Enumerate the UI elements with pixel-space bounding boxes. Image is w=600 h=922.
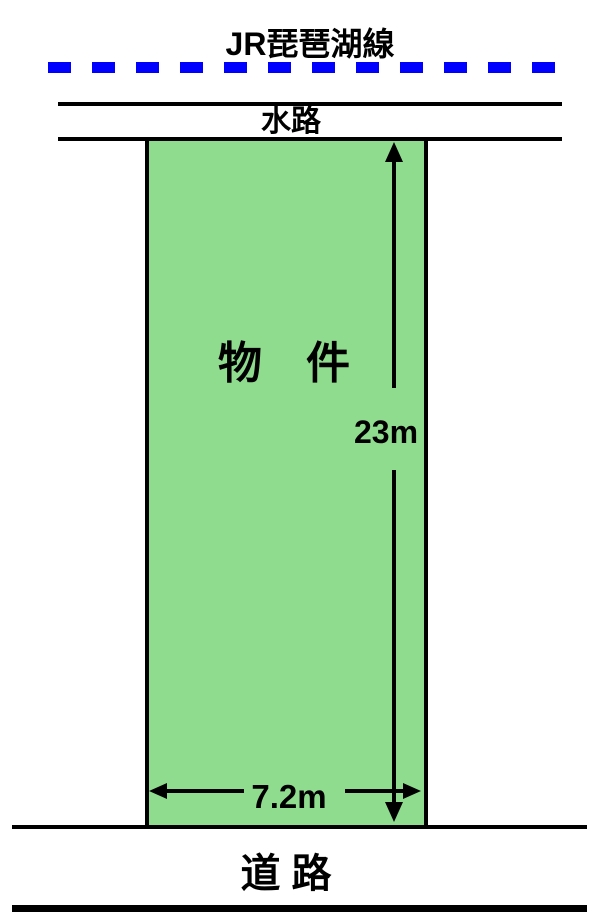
site-plan-diagram: JR琵琶湖線 水路 物 件 23m 7.2m 道 路 [0, 0, 600, 922]
frontage-dimension-label: 7.2m [251, 780, 326, 813]
arrow-down-icon [385, 802, 403, 822]
depth-arrow-line-lower [392, 470, 396, 802]
frontage-arrow-line-right [345, 789, 404, 793]
property-label: 物 件 [218, 342, 350, 386]
road-top-line [12, 825, 587, 829]
arrow-right-icon [403, 783, 421, 799]
road-label: 道 路 [240, 854, 331, 894]
waterway-label: 水路 [261, 107, 321, 137]
railway-dashed-line [48, 62, 555, 73]
depth-dimension-label: 23m [354, 416, 418, 448]
railway-line-label: JR琵琶湖線 [226, 28, 395, 60]
property-parcel [145, 137, 428, 829]
road-bottom-line [12, 905, 587, 912]
arrow-up-icon [385, 142, 403, 162]
frontage-arrow-line-left [165, 789, 244, 793]
depth-arrow-line-upper [392, 160, 396, 388]
